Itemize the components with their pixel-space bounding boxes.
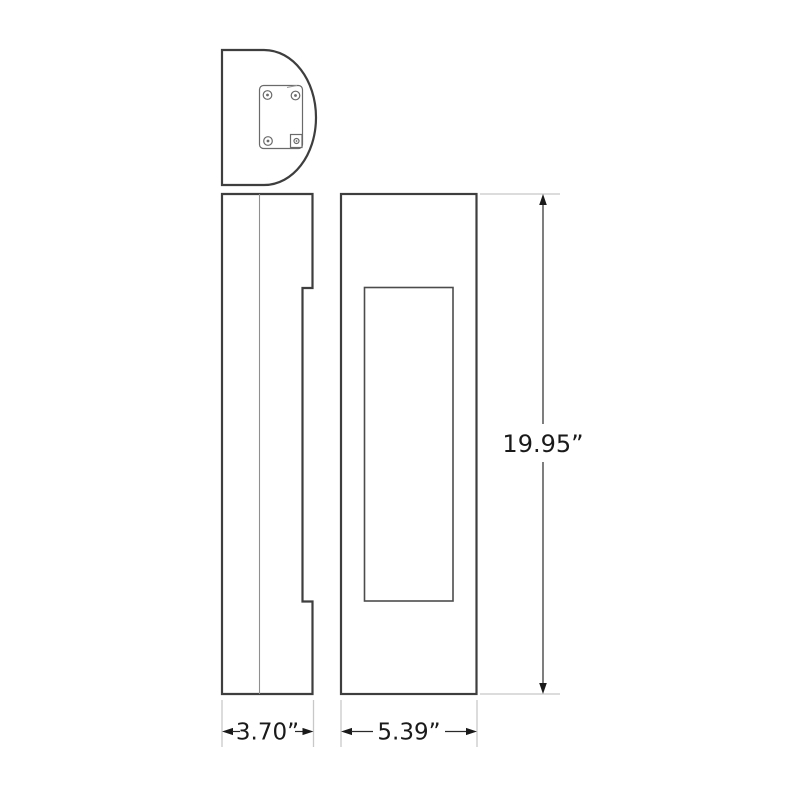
junction-box [291,135,303,148]
front-view [341,194,477,694]
dimension-width-label: 5.39” [377,720,440,746]
arrowhead-right-icon [466,728,477,735]
dimension-height: 19.95” [480,194,584,694]
side-view [222,194,313,694]
screw-hole-top-right [291,91,300,100]
front-view-lens [365,288,454,602]
top-view [222,50,316,185]
screw-hole-bottom-left [264,137,273,146]
side-view-outline [222,194,313,694]
drawing-canvas: 19.95” 3.70” 5.39” [0,0,800,800]
arrowhead-up-icon [539,194,547,205]
arrowhead-right-icon [303,728,314,735]
arrowhead-left-icon [222,728,233,735]
screw-hole-top-left [263,91,272,100]
arrowhead-left-icon [341,728,352,735]
dimension-width: 5.39” [341,700,477,747]
technical-drawing: 19.95” 3.70” 5.39” [0,0,800,800]
dimension-height-label: 19.95” [502,430,583,458]
dimension-depth: 3.70” [222,700,314,747]
arrowhead-down-icon [539,683,547,694]
dimension-depth-label: 3.70” [236,720,299,746]
